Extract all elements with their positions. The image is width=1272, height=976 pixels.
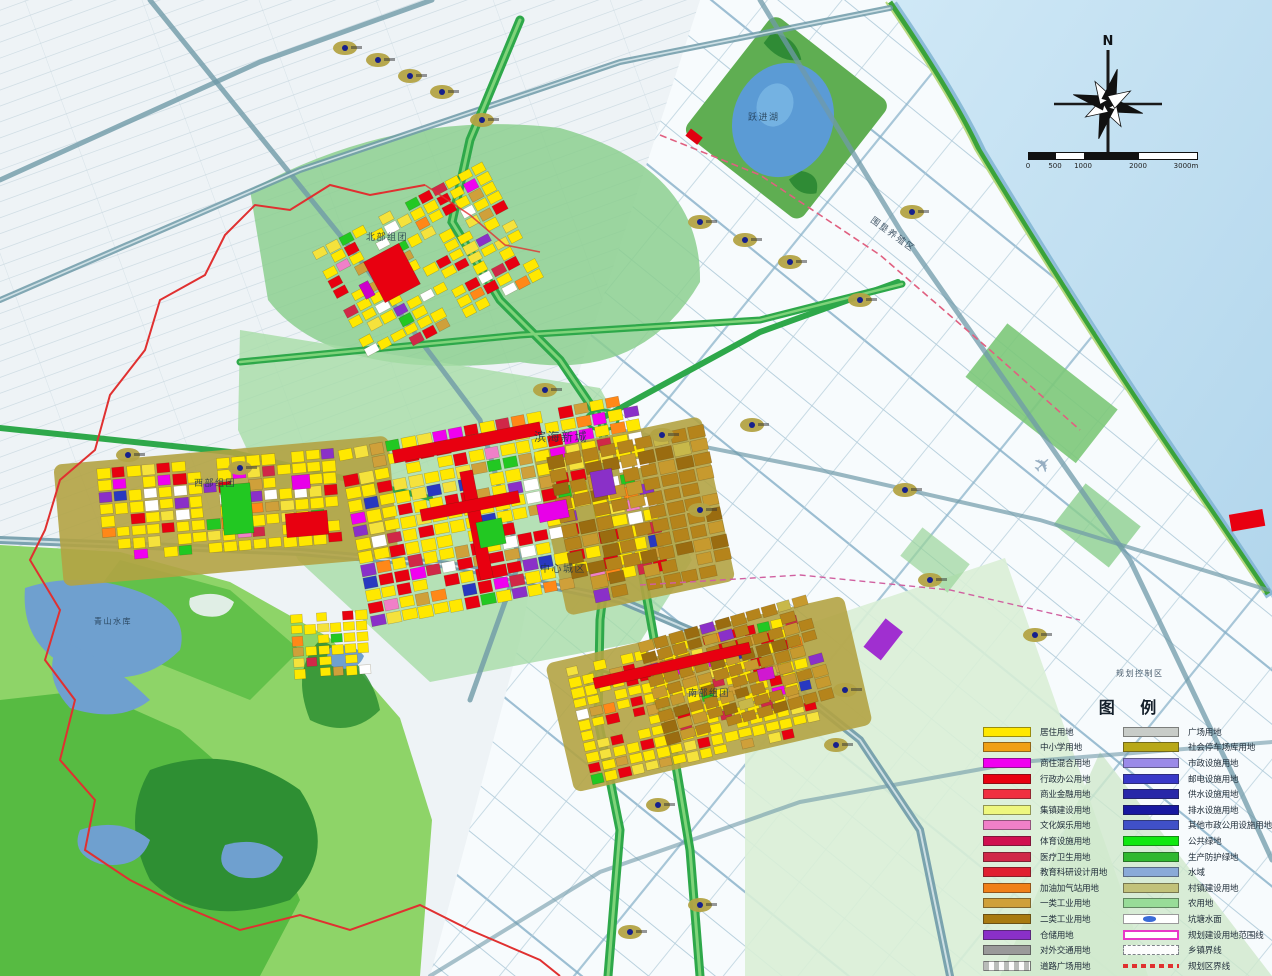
legend-swatch	[983, 898, 1031, 908]
scale-segment	[1084, 153, 1139, 159]
legend-swatch	[983, 820, 1031, 830]
legend-swatch	[983, 727, 1031, 737]
scale-tick-label: 500	[1048, 162, 1061, 170]
legend-swatch	[1123, 836, 1179, 846]
legend-label: 商住混合用地	[1040, 757, 1090, 769]
legend-item: 规划区界线	[1123, 958, 1272, 974]
legend-item: 医疗卫生用地	[983, 849, 1123, 865]
legend-label: 规划建设用地范围线	[1188, 929, 1264, 941]
legend-swatch	[1123, 867, 1179, 877]
legend-label: 水域	[1188, 866, 1205, 878]
legend-label: 体育设施用地	[1040, 835, 1090, 847]
legend-item: 集镇建设用地	[983, 802, 1123, 818]
legend-item: 对外交通用地	[983, 942, 1123, 958]
map-place-label: 青山水库	[94, 616, 132, 627]
legend-label: 邮电设施用地	[1188, 773, 1238, 785]
legend-swatch	[983, 852, 1031, 862]
legend-item: 居住用地	[983, 724, 1123, 740]
scale-tick-label: 2000	[1129, 162, 1147, 170]
legend-item: 公共绿地	[1123, 833, 1272, 849]
legend-label: 规划区界线	[1188, 960, 1230, 972]
legend-label: 广场用地	[1188, 726, 1222, 738]
map-place-label: 北部组团	[366, 230, 408, 243]
legend-item: 生产防护绿地	[1123, 849, 1272, 865]
legend-item: 教育科研设计用地	[983, 864, 1123, 880]
legend-swatch	[983, 742, 1031, 752]
legend-item: 坑塘水面	[1123, 911, 1272, 927]
legend-swatch	[1123, 883, 1179, 893]
map-place-label: 规划控制区	[1116, 668, 1164, 679]
legend-swatch	[983, 883, 1031, 893]
compass-north-label: N	[1048, 34, 1168, 49]
legend-label: 道路广场用地	[1040, 960, 1090, 972]
legend-swatch	[1123, 758, 1179, 768]
map-place-label: 跃进湖	[748, 110, 780, 123]
legend-swatch	[1123, 945, 1179, 955]
legend-item: 文化娱乐用地	[983, 818, 1123, 834]
legend-item: 仓储用地	[983, 927, 1123, 943]
legend-label: 加油加气站用地	[1040, 882, 1099, 894]
legend-label: 医疗卫生用地	[1040, 851, 1090, 863]
legend-item: 商业金融用地	[983, 786, 1123, 802]
legend-swatch	[1123, 852, 1179, 862]
legend-item: 乡镇界线	[1123, 942, 1272, 958]
legend-label: 教育科研设计用地	[1040, 866, 1107, 878]
map-legend: 图 例 居住用地中小学用地商住混合用地行政办公用地商业金融用地集镇建设用地文化娱…	[983, 694, 1272, 974]
legend-swatch	[983, 930, 1031, 940]
legend-item: 排水设施用地	[1123, 802, 1272, 818]
legend-item: 一类工业用地	[983, 896, 1123, 912]
legend-item: 行政办公用地	[983, 771, 1123, 787]
legend-swatch	[983, 789, 1031, 799]
legend-item: 商住混合用地	[983, 755, 1123, 771]
legend-label: 其他市政公用设施用地	[1188, 819, 1272, 831]
legend-item: 二类工业用地	[983, 911, 1123, 927]
legend-swatch	[983, 867, 1031, 877]
legend-swatch	[1123, 774, 1179, 784]
legend-swatch	[1123, 930, 1179, 940]
legend-item: 市政设施用地	[1123, 755, 1272, 771]
legend-label: 文化娱乐用地	[1040, 819, 1090, 831]
legend-label: 社会停车场库用地	[1188, 741, 1255, 753]
legend-item: 社会停车场库用地	[1123, 740, 1272, 756]
map-place-label: 中心城区	[540, 560, 586, 575]
scale-tick-label: 3000m	[1174, 162, 1199, 170]
legend-label: 供水设施用地	[1188, 788, 1238, 800]
scale-tick-label: 1000	[1074, 162, 1092, 170]
legend-item: 中小学用地	[983, 740, 1123, 756]
legend-item: 邮电设施用地	[1123, 771, 1272, 787]
legend-label: 公共绿地	[1188, 835, 1222, 847]
map-place-label: 南部组团	[688, 686, 730, 699]
legend-swatch	[983, 805, 1031, 815]
legend-swatch	[1123, 898, 1179, 908]
legend-item: 加油加气站用地	[983, 880, 1123, 896]
legend-column-right: 广场用地社会停车场库用地市政设施用地邮电设施用地供水设施用地排水设施用地其他市政…	[1123, 724, 1272, 974]
legend-swatch	[1123, 742, 1179, 752]
legend-swatch	[983, 945, 1031, 955]
legend-title: 图 例	[983, 694, 1272, 718]
legend-swatch	[1123, 727, 1179, 737]
legend-label: 仓储用地	[1040, 929, 1074, 941]
legend-label: 商业金融用地	[1040, 788, 1090, 800]
legend-label: 行政办公用地	[1040, 773, 1090, 785]
legend-swatch	[1123, 964, 1179, 968]
legend-column-left: 居住用地中小学用地商住混合用地行政办公用地商业金融用地集镇建设用地文化娱乐用地体…	[983, 724, 1123, 974]
legend-label: 市政设施用地	[1188, 757, 1238, 769]
compass-star	[1048, 48, 1168, 158]
legend-item: 其他市政公用设施用地	[1123, 818, 1272, 834]
map-place-label: 滨海新城	[534, 428, 588, 445]
legend-item: 农用地	[1123, 896, 1272, 912]
scale-bar-segments	[1028, 152, 1198, 160]
legend-label: 中小学用地	[1040, 741, 1082, 753]
legend-item: 道路广场用地	[983, 958, 1123, 974]
legend-label: 一类工业用地	[1040, 897, 1090, 909]
legend-swatch	[1123, 820, 1179, 830]
legend-label: 村镇建设用地	[1188, 882, 1238, 894]
legend-swatch	[983, 758, 1031, 768]
legend-item: 广场用地	[1123, 724, 1272, 740]
scale-bar: 0500100020003000m	[1028, 152, 1198, 178]
legend-swatch	[983, 961, 1031, 971]
compass-rose: N	[1048, 34, 1168, 154]
legend-item: 规划建设用地范围线	[1123, 927, 1272, 943]
legend-swatch	[983, 836, 1031, 846]
legend-label: 乡镇界线	[1188, 944, 1222, 956]
legend-item: 水域	[1123, 864, 1272, 880]
legend-label: 农用地	[1188, 897, 1213, 909]
legend-label: 坑塘水面	[1188, 913, 1222, 925]
legend-label: 排水设施用地	[1188, 804, 1238, 816]
legend-swatch	[983, 914, 1031, 924]
legend-swatch	[1123, 789, 1179, 799]
legend-item: 供水设施用地	[1123, 786, 1272, 802]
legend-item: 体育设施用地	[983, 833, 1123, 849]
legend-swatch	[1123, 914, 1179, 924]
legend-swatch	[1123, 805, 1179, 815]
legend-label: 居住用地	[1040, 726, 1074, 738]
legend-swatch	[983, 774, 1031, 784]
legend-item: 村镇建设用地	[1123, 880, 1272, 896]
map-place-label: 西部组团	[194, 476, 236, 489]
legend-label: 集镇建设用地	[1040, 804, 1090, 816]
legend-label: 生产防护绿地	[1188, 851, 1238, 863]
scale-tick-label: 0	[1026, 162, 1030, 170]
scale-segment	[1029, 153, 1056, 159]
legend-label: 对外交通用地	[1040, 944, 1090, 956]
planning-map-image: ✈ N 0500100020003000m 图 例 居住用地中小学用地商住混合用…	[0, 0, 1272, 976]
legend-label: 二类工业用地	[1040, 913, 1090, 925]
